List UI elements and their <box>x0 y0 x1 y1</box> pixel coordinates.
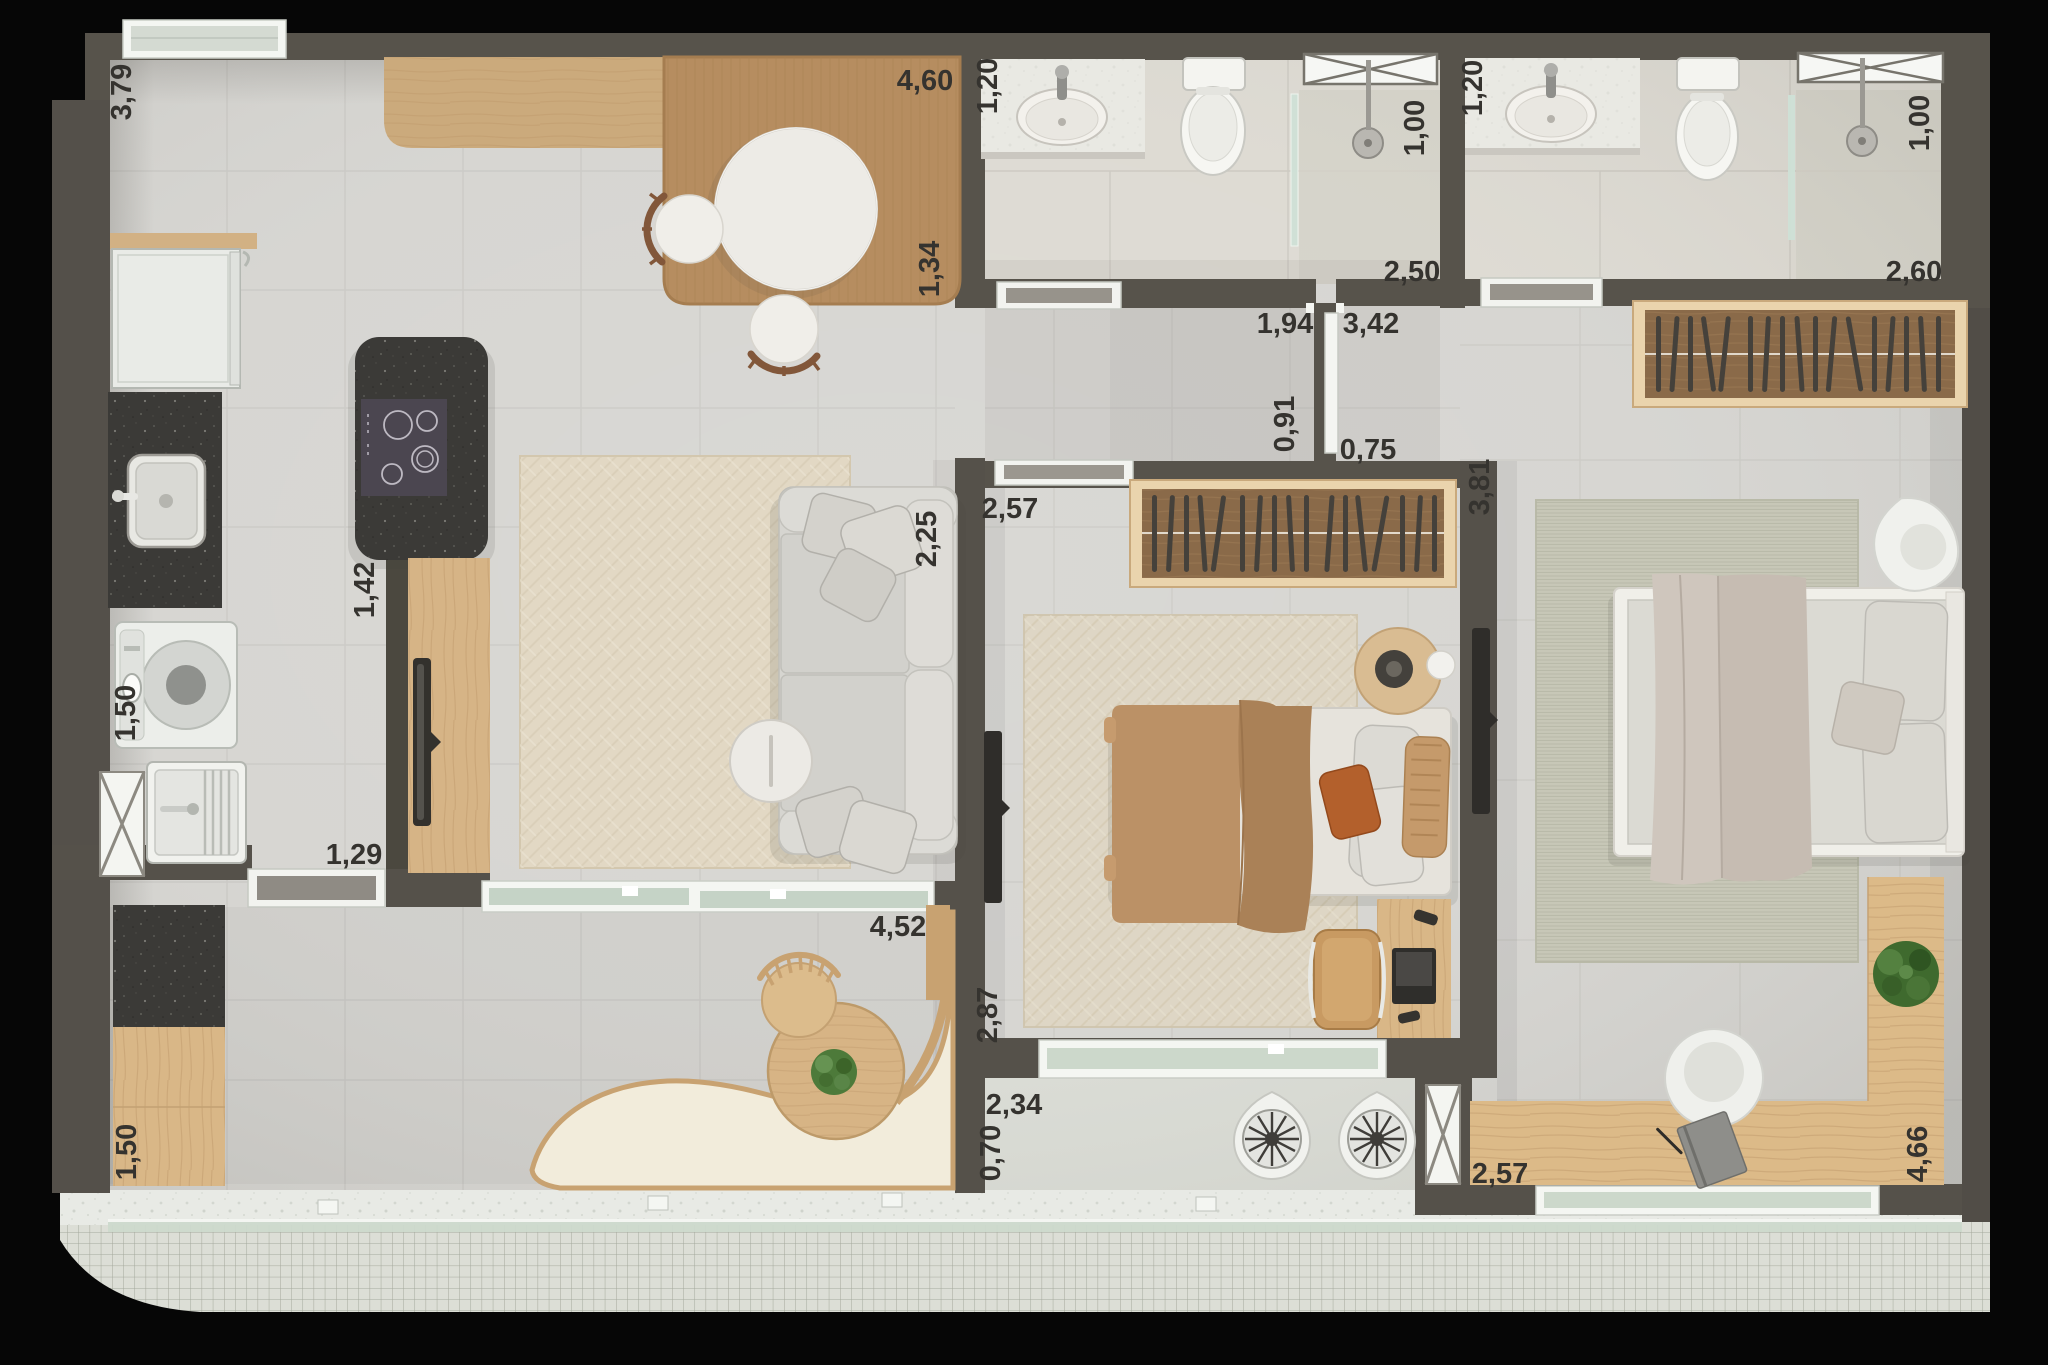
svg-text:3,79: 3,79 <box>106 64 138 120</box>
svg-text:4,52: 4,52 <box>870 911 926 943</box>
svg-text:2,57: 2,57 <box>1472 1158 1528 1190</box>
svg-text:1,42: 1,42 <box>349 562 381 618</box>
svg-text:2,25: 2,25 <box>911 511 943 567</box>
svg-text:0,91: 0,91 <box>1269 396 1301 452</box>
svg-text:2,57: 2,57 <box>982 493 1038 525</box>
svg-text:2,50: 2,50 <box>1384 256 1440 288</box>
svg-text:1,50: 1,50 <box>110 685 142 741</box>
svg-text:4,60: 4,60 <box>897 65 953 97</box>
svg-text:4,66: 4,66 <box>1902 1126 1934 1182</box>
svg-text:3,42: 3,42 <box>1343 308 1399 340</box>
svg-text:1,00: 1,00 <box>1399 100 1431 156</box>
svg-text:3,81: 3,81 <box>1464 459 1496 515</box>
svg-text:0,75: 0,75 <box>1340 434 1396 466</box>
svg-text:1,20: 1,20 <box>1457 60 1489 116</box>
svg-text:1,34: 1,34 <box>914 241 946 297</box>
svg-text:1,20: 1,20 <box>972 58 1004 114</box>
svg-text:2,60: 2,60 <box>1886 256 1942 288</box>
svg-text:0,70: 0,70 <box>975 1125 1007 1181</box>
svg-text:1,00: 1,00 <box>1904 95 1936 151</box>
svg-text:1,29: 1,29 <box>326 839 382 871</box>
svg-text:2,87: 2,87 <box>972 987 1004 1043</box>
svg-text:2,34: 2,34 <box>986 1089 1042 1121</box>
svg-text:1,50: 1,50 <box>111 1124 143 1180</box>
svg-text:1,94: 1,94 <box>1257 308 1313 340</box>
